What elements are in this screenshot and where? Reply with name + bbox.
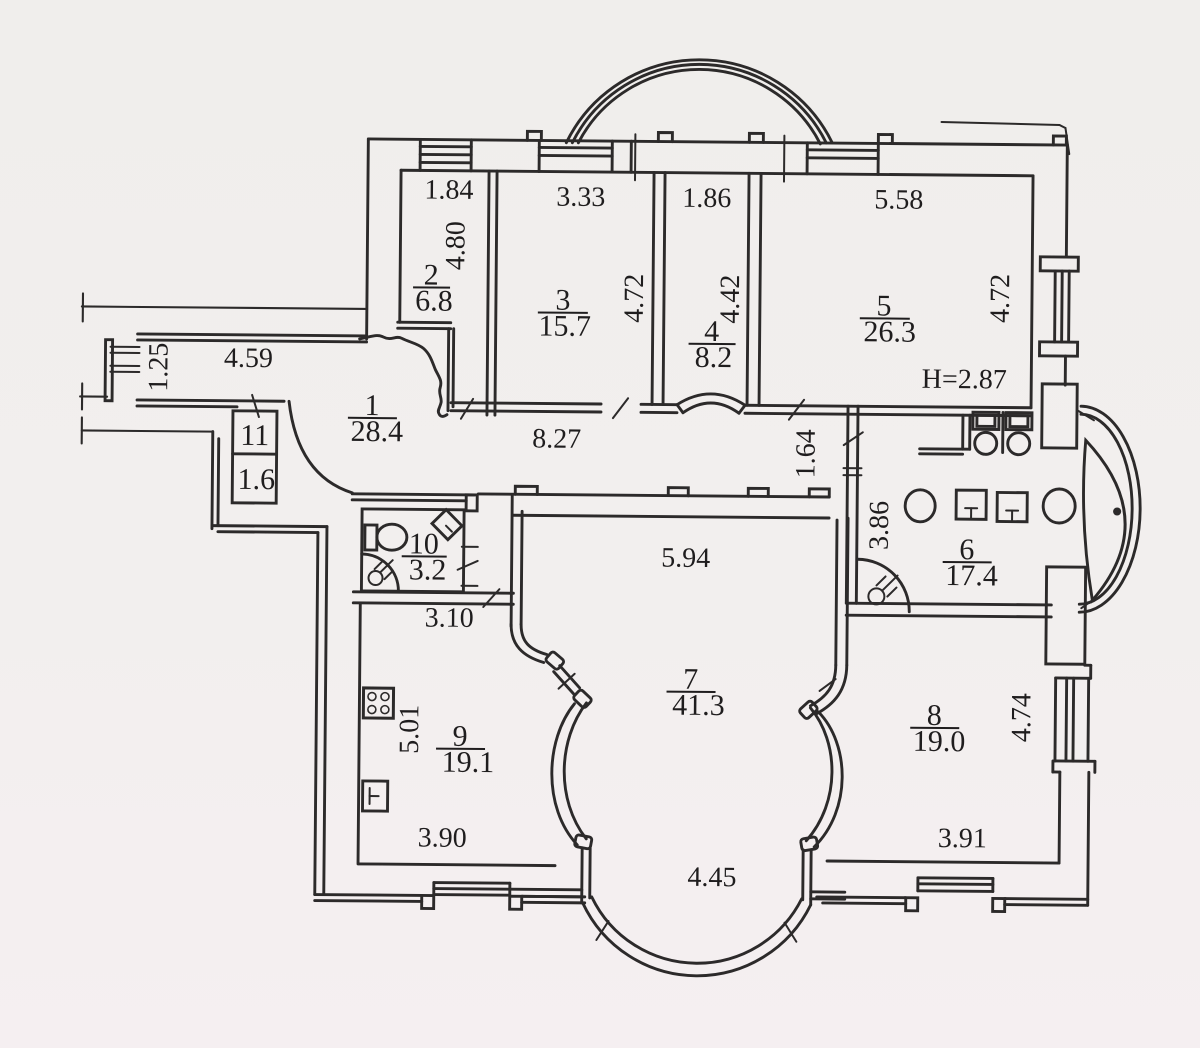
- svg-text:26.3: 26.3: [863, 315, 916, 348]
- svg-text:4.45: 4.45: [687, 862, 736, 893]
- svg-text:6.8: 6.8: [415, 284, 453, 317]
- svg-text:4.74: 4.74: [1006, 693, 1037, 742]
- svg-text:1.6: 1.6: [237, 463, 275, 496]
- svg-text:1.86: 1.86: [682, 183, 731, 214]
- svg-text:3.33: 3.33: [556, 182, 605, 213]
- svg-text:8.2: 8.2: [695, 341, 733, 374]
- svg-text:5.94: 5.94: [661, 543, 710, 574]
- svg-text:11: 11: [240, 419, 269, 452]
- svg-text:5.58: 5.58: [874, 184, 923, 215]
- svg-text:3.2: 3.2: [409, 553, 447, 586]
- svg-text:17.4: 17.4: [945, 559, 998, 592]
- svg-text:4.42: 4.42: [715, 274, 746, 323]
- svg-text:1.64: 1.64: [790, 429, 821, 478]
- svg-text:4.59: 4.59: [224, 343, 273, 374]
- svg-text:8.27: 8.27: [532, 423, 581, 454]
- svg-text:28.4: 28.4: [350, 415, 403, 448]
- svg-text:3.90: 3.90: [418, 822, 467, 853]
- svg-text:1.25: 1.25: [143, 343, 174, 392]
- svg-text:41.3: 41.3: [672, 689, 725, 722]
- svg-text:4.72: 4.72: [985, 274, 1016, 323]
- svg-text:19.1: 19.1: [442, 746, 495, 779]
- svg-text:3.91: 3.91: [938, 823, 987, 854]
- svg-text:1.84: 1.84: [424, 174, 473, 205]
- svg-text:4.80: 4.80: [440, 221, 471, 270]
- svg-text:3.10: 3.10: [425, 602, 474, 633]
- svg-text:H=2.87: H=2.87: [922, 364, 1007, 396]
- svg-text:5.01: 5.01: [394, 705, 425, 754]
- svg-text:19.0: 19.0: [913, 725, 966, 758]
- svg-text:4.72: 4.72: [619, 274, 650, 323]
- svg-text:15.7: 15.7: [538, 309, 591, 342]
- svg-text:3.86: 3.86: [864, 501, 895, 550]
